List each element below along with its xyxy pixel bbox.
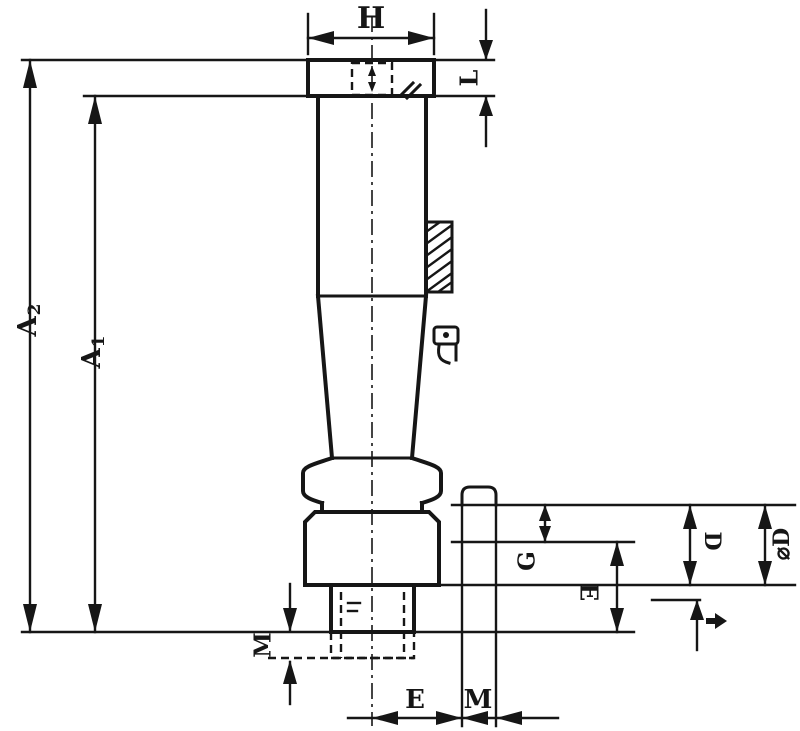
- extension-lines: [22, 60, 795, 726]
- dim-label-l: L: [455, 69, 484, 86]
- dim-label-a2-sub: 2: [25, 303, 45, 315]
- dim-G: [539, 505, 551, 542]
- tap-holder-dimension-drawing: H L A2 A1 G E D: [0, 0, 800, 731]
- dim-label-a1-sub: 1: [89, 335, 109, 347]
- dim-label-a1-base: A: [77, 348, 107, 370]
- dim-label-e-bottom: E: [405, 685, 425, 715]
- dim-E-M-bottom: [348, 711, 558, 725]
- collar-right: [412, 458, 441, 503]
- dim-label-a2-base: A: [13, 316, 43, 338]
- dim-label-d: D: [699, 531, 725, 550]
- ball-icon: [443, 332, 449, 338]
- part-outline: [303, 60, 496, 658]
- clip-detail: [434, 327, 458, 363]
- dim-label-diameter-d: ⌀D: [769, 528, 795, 560]
- dim-label-m-side: M: [250, 632, 277, 657]
- collar-left: [303, 458, 332, 503]
- dim-label-m-bottom: M: [464, 685, 493, 715]
- dim-A2: [23, 60, 37, 632]
- dim-M-vertical: [283, 584, 297, 704]
- dim-E-vertical: [610, 542, 624, 632]
- knurl-band: [426, 222, 452, 292]
- dim-label-e-side: E: [575, 583, 604, 601]
- dim-label-a2: A2: [13, 303, 45, 337]
- tiny-right-arrow-marker: [706, 613, 727, 629]
- dim-D: [683, 505, 697, 585]
- dim-label-a1: A1: [77, 335, 109, 369]
- dim-small-gap: [690, 600, 727, 650]
- drive-pin: [462, 487, 496, 505]
- dim-label-h: H: [357, 1, 385, 36]
- technical-drawing: H L A2 A1 G E D: [0, 0, 800, 731]
- dim-label-g: G: [514, 551, 541, 571]
